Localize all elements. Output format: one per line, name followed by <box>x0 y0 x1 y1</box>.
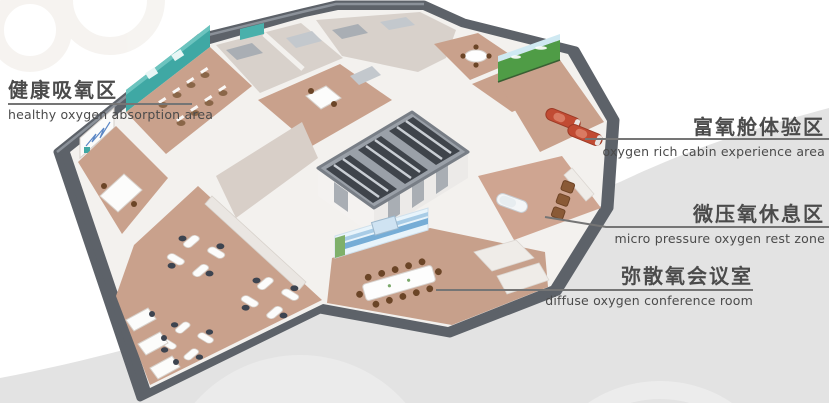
label-healthy-oxygen-area: 健康吸氧区 healthy oxygen absorption area <box>8 78 213 122</box>
label-cabin-en: oxygen rich cabin experience area <box>602 144 825 159</box>
label-conference-en: diffuse oxygen conference room <box>545 293 753 308</box>
label-conference-room: 弥散氧会议室 diffuse oxygen conference room <box>545 264 753 308</box>
label-rest-zh: 微压氧休息区 <box>614 202 825 226</box>
scene: 健康吸氧区 healthy oxygen absorption area 富氧舱… <box>0 0 829 403</box>
label-oxygen-cabin-area: 富氧舱体验区 oxygen rich cabin experience area <box>602 115 825 159</box>
label-conference-zh: 弥散氧会议室 <box>545 264 753 288</box>
label-rest-zone: 微压氧休息区 micro pressure oxygen rest zone <box>614 202 825 246</box>
brand-swirl-watermark <box>0 0 156 64</box>
label-healthy-zh: 健康吸氧区 <box>8 78 213 102</box>
label-cabin-zh: 富氧舱体验区 <box>602 115 825 139</box>
label-healthy-en: healthy oxygen absorption area <box>8 107 213 122</box>
label-rest-en: micro pressure oxygen rest zone <box>614 231 825 246</box>
